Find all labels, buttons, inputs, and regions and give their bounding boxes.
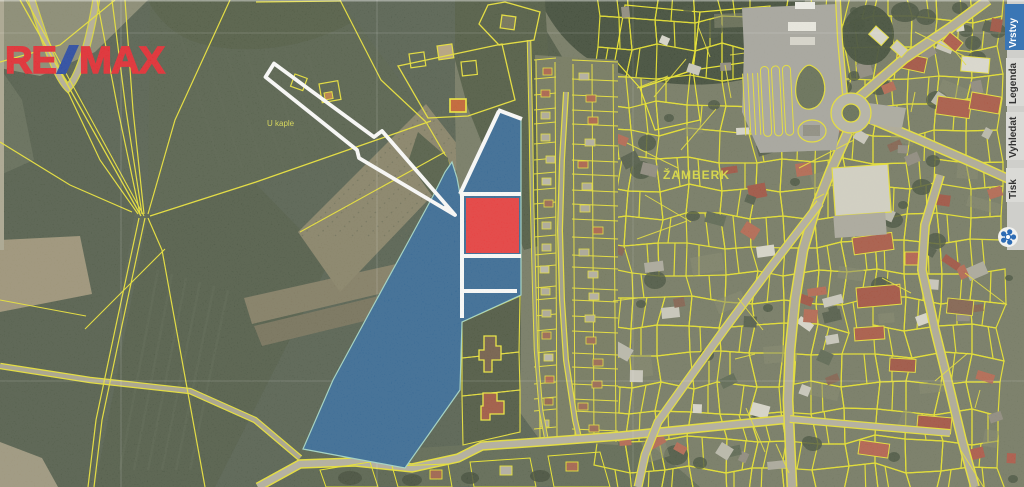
svg-text:Legenda: Legenda [1008,62,1019,104]
svg-text:Vyhledat: Vyhledat [1008,116,1019,158]
svg-text:Tisk: Tisk [1008,179,1019,199]
svg-text:Vrstvy: Vrstvy [1008,18,1019,48]
